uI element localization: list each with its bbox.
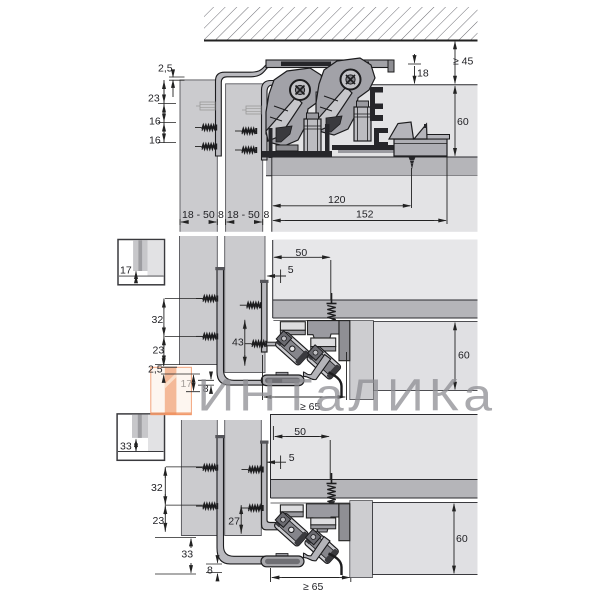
svg-text:18: 18	[417, 68, 429, 80]
svg-text:33: 33	[181, 549, 193, 561]
svg-text:23: 23	[153, 515, 165, 527]
svg-text:5: 5	[288, 264, 294, 276]
svg-text:8: 8	[207, 565, 213, 577]
svg-text:≥ 45: ≥ 45	[453, 56, 474, 68]
svg-text:60: 60	[456, 533, 468, 545]
svg-text:2,5: 2,5	[158, 63, 173, 75]
svg-text:8: 8	[218, 209, 224, 221]
svg-text:43: 43	[232, 337, 244, 349]
svg-text:18 - 50: 18 - 50	[227, 209, 260, 221]
svg-text:ИНТаЛИКа: ИНТаЛИКа	[197, 371, 496, 421]
svg-text:152: 152	[356, 209, 374, 221]
svg-text:18 - 50: 18 - 50	[182, 209, 215, 221]
svg-text:≥ 65: ≥ 65	[303, 581, 324, 593]
svg-text:5: 5	[289, 452, 295, 464]
svg-text:16: 16	[149, 135, 161, 147]
svg-text:23: 23	[148, 93, 160, 105]
svg-text:33: 33	[120, 441, 132, 453]
svg-text:23: 23	[153, 345, 165, 357]
svg-text:17: 17	[120, 265, 132, 277]
svg-text:32: 32	[152, 314, 164, 326]
svg-text:2,5: 2,5	[148, 364, 163, 376]
svg-text:8: 8	[264, 209, 270, 221]
svg-text:60: 60	[458, 350, 470, 362]
svg-text:27: 27	[228, 516, 240, 528]
svg-text:50: 50	[294, 426, 306, 438]
svg-text:16: 16	[149, 116, 161, 128]
svg-text:32: 32	[151, 482, 163, 494]
svg-text:50: 50	[296, 247, 308, 259]
svg-text:60: 60	[457, 116, 469, 128]
svg-text:120: 120	[328, 194, 346, 206]
